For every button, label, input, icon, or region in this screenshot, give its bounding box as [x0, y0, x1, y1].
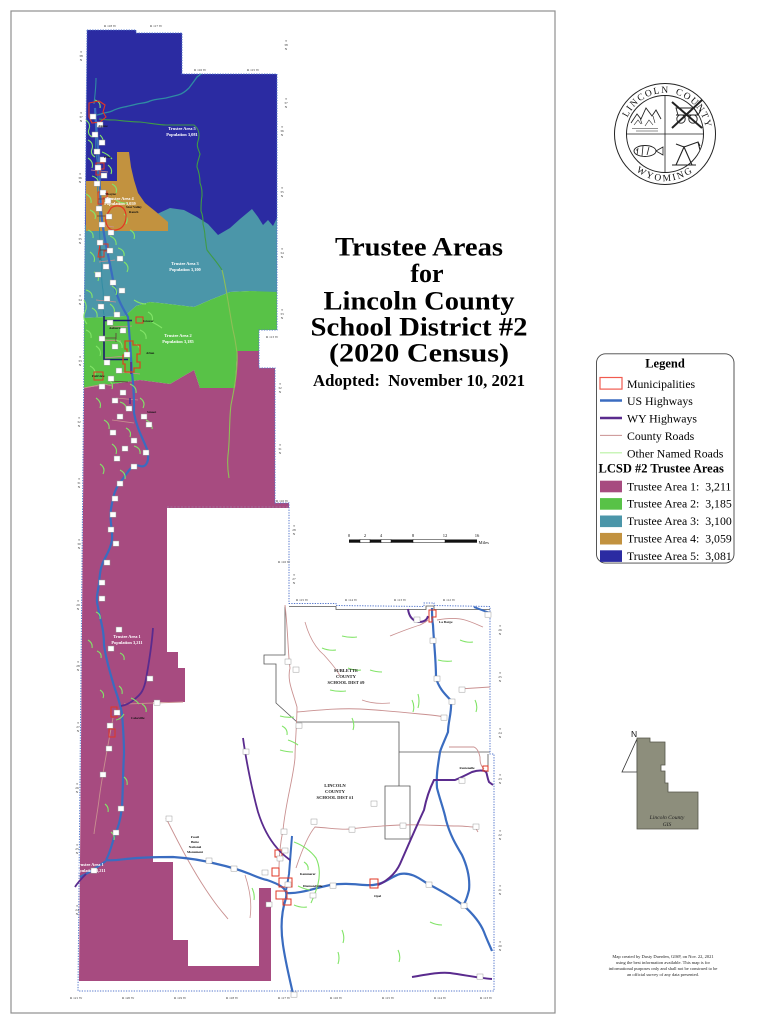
svg-text:4: 4: [380, 533, 383, 538]
svg-text:Trustee Area 1: Trustee Area 1: [113, 634, 140, 639]
svg-text:N: N: [79, 363, 82, 367]
svg-text:N: N: [79, 302, 82, 306]
svg-text:Lincoln County: Lincoln County: [649, 815, 685, 821]
svg-text:N: N: [78, 424, 81, 428]
svg-text:R 117 W: R 117 W: [278, 996, 291, 1000]
svg-text:Ranch: Ranch: [129, 210, 139, 214]
svg-text:Trustee Area 3: Trustee Area 3: [171, 261, 199, 266]
svg-text:Population 3,100: Population 3,100: [169, 267, 201, 272]
svg-text:GIS: GIS: [663, 822, 672, 828]
svg-text:N: N: [499, 735, 502, 739]
svg-text:Population 3,211: Population 3,211: [74, 868, 105, 873]
svg-text:LCSD #2 Trustee Areas: LCSD #2 Trustee Areas: [599, 462, 724, 476]
svg-text:N: N: [279, 390, 282, 394]
svg-text:Diamondville: Diamondville: [303, 884, 323, 888]
svg-text:N: N: [77, 607, 80, 611]
svg-text:Afton: Afton: [146, 351, 154, 355]
svg-text:Trustee Areas: Trustee Areas: [335, 233, 503, 262]
svg-text:Trustee Area 3: 3,100: Trustee Area 3: 3,100: [627, 514, 732, 528]
svg-text:Trustee Area 4: 3,059: Trustee Area 4: 3,059: [627, 532, 732, 546]
svg-text:using the best information ava: using the best information available. Th…: [616, 960, 711, 965]
svg-text:Trustee Area 2: 3,185: Trustee Area 2: 3,185: [627, 497, 732, 511]
svg-text:N: N: [78, 546, 81, 550]
svg-text:N: N: [499, 632, 502, 636]
svg-text:N: N: [281, 316, 284, 320]
svg-text:R 120 W: R 120 W: [122, 996, 135, 1000]
svg-text:Legend: Legend: [645, 357, 685, 371]
svg-text:US Highways: US Highways: [627, 394, 693, 408]
svg-text:informational purposes only an: informational purposes only and shall no…: [609, 966, 718, 971]
svg-text:an official survey of any data: an official survey of any data presented…: [627, 972, 699, 977]
svg-text:N: N: [77, 668, 80, 672]
svg-text:N: N: [631, 729, 637, 739]
svg-text:SCHOOL DIST #9: SCHOOL DIST #9: [328, 680, 366, 685]
svg-text:Fossil: Fossil: [191, 835, 199, 839]
svg-text:N: N: [281, 133, 284, 137]
svg-text:R 115 W: R 115 W: [296, 598, 309, 602]
svg-text:N: N: [285, 47, 288, 51]
svg-text:N: N: [293, 581, 296, 585]
svg-text:Butte: Butte: [191, 840, 199, 844]
svg-text:N: N: [76, 790, 79, 794]
svg-text:0: 0: [348, 533, 351, 538]
svg-text:Municipalities: Municipalities: [627, 377, 696, 391]
svg-text:Etna: Etna: [104, 155, 111, 159]
svg-text:N: N: [499, 781, 502, 785]
svg-text:N: N: [499, 892, 502, 896]
svg-text:8: 8: [412, 533, 415, 538]
svg-text:National: National: [189, 845, 201, 849]
svg-text:Trustee Area 5: 3,081: Trustee Area 5: 3,081: [627, 549, 732, 563]
svg-text:R 113 W: R 113 W: [480, 996, 493, 1000]
svg-text:Star Valley: Star Valley: [126, 205, 142, 209]
svg-text:N: N: [285, 105, 288, 109]
svg-text:Fairview: Fairview: [92, 374, 105, 378]
svg-text:Trustee Area 1: Trustee Area 1: [76, 862, 103, 867]
svg-text:R 118 W: R 118 W: [104, 24, 117, 28]
svg-text:N: N: [281, 194, 284, 198]
svg-text:LINCOLN: LINCOLN: [324, 783, 346, 788]
svg-text:Population 3,185: Population 3,185: [162, 339, 194, 344]
svg-text:N: N: [78, 485, 81, 489]
svg-text:Grover: Grover: [143, 319, 154, 323]
svg-text:R 116 W: R 116 W: [278, 560, 291, 564]
svg-text:16: 16: [475, 533, 480, 538]
svg-text:N: N: [80, 58, 83, 62]
svg-text:School District #2: School District #2: [311, 313, 528, 342]
svg-text:Opal: Opal: [374, 894, 381, 898]
svg-text:R 116 W: R 116 W: [276, 499, 289, 503]
svg-text:Smoot: Smoot: [147, 410, 157, 414]
svg-text:N: N: [80, 119, 83, 123]
svg-text:for: for: [410, 259, 443, 288]
svg-text:Monument: Monument: [187, 850, 204, 854]
svg-text:Other Named Roads: Other Named Roads: [627, 446, 724, 460]
svg-text:Population 3,211: Population 3,211: [111, 640, 142, 645]
svg-text:R 114 W: R 114 W: [434, 996, 447, 1000]
svg-text:COUNTY: COUNTY: [325, 789, 346, 794]
svg-text:N: N: [499, 948, 502, 952]
svg-text:WY Highways: WY Highways: [627, 412, 697, 426]
svg-text:SCHOOL DIST #1: SCHOOL DIST #1: [317, 795, 355, 800]
svg-text:Trustee Area 5: Trustee Area 5: [168, 126, 196, 131]
svg-text:Trustee Area 2: Trustee Area 2: [164, 333, 191, 338]
svg-text:N: N: [79, 241, 82, 245]
svg-text:R 113 W: R 113 W: [266, 335, 279, 339]
svg-text:Population 3,081: Population 3,081: [166, 132, 197, 137]
svg-text:R 121 W: R 121 W: [70, 996, 83, 1000]
svg-text:12: 12: [443, 533, 448, 538]
svg-text:R 113 W: R 113 W: [394, 598, 407, 602]
svg-text:Auburn: Auburn: [109, 326, 121, 330]
svg-text:R 117 W: R 117 W: [150, 24, 163, 28]
svg-text:LINCOLN: LINCOLN: [621, 86, 670, 119]
svg-text:N: N: [279, 451, 282, 455]
svg-text:County Roads: County Roads: [627, 429, 695, 443]
svg-text:R 114 W: R 114 W: [345, 598, 358, 602]
svg-text:R 115 W: R 115 W: [247, 68, 260, 72]
svg-text:Lincoln County: Lincoln County: [324, 287, 515, 316]
svg-text:Miles: Miles: [479, 540, 490, 545]
svg-text:Kemmerer: Kemmerer: [300, 872, 316, 876]
svg-text:(2020 Census): (2020 Census): [329, 339, 509, 368]
svg-text:2: 2: [364, 533, 367, 538]
svg-text:Thayne: Thayne: [105, 192, 116, 196]
svg-text:R 115 W: R 115 W: [382, 996, 395, 1000]
svg-text:N: N: [281, 255, 284, 259]
svg-text:COUNTY: COUNTY: [336, 674, 357, 679]
svg-text:R 116 W: R 116 W: [194, 68, 207, 72]
svg-text:R 118 W: R 118 W: [226, 996, 239, 1000]
svg-text:Trustee Area 1: 3,211: Trustee Area 1: 3,211: [627, 479, 731, 493]
svg-text:Cokeville: Cokeville: [131, 716, 145, 720]
svg-text:R 119 W: R 119 W: [174, 996, 187, 1000]
svg-text:N: N: [293, 532, 296, 536]
svg-text:Fontenelle: Fontenelle: [459, 766, 475, 770]
svg-text:N: N: [499, 837, 502, 841]
svg-text:N: N: [499, 679, 502, 683]
svg-text:La Barge: La Barge: [439, 620, 453, 624]
svg-text:R 112 W: R 112 W: [443, 598, 456, 602]
svg-text:R 116 W: R 116 W: [330, 996, 343, 1000]
svg-text:N: N: [79, 180, 82, 184]
svg-text:N: N: [76, 851, 79, 855]
svg-text:Adopted: November 10, 2021: Adopted: November 10, 2021: [313, 371, 525, 390]
svg-text:SUBLETTE: SUBLETTE: [334, 668, 358, 673]
svg-text:N: N: [77, 729, 80, 733]
svg-text:Alpine: Alpine: [98, 124, 108, 128]
